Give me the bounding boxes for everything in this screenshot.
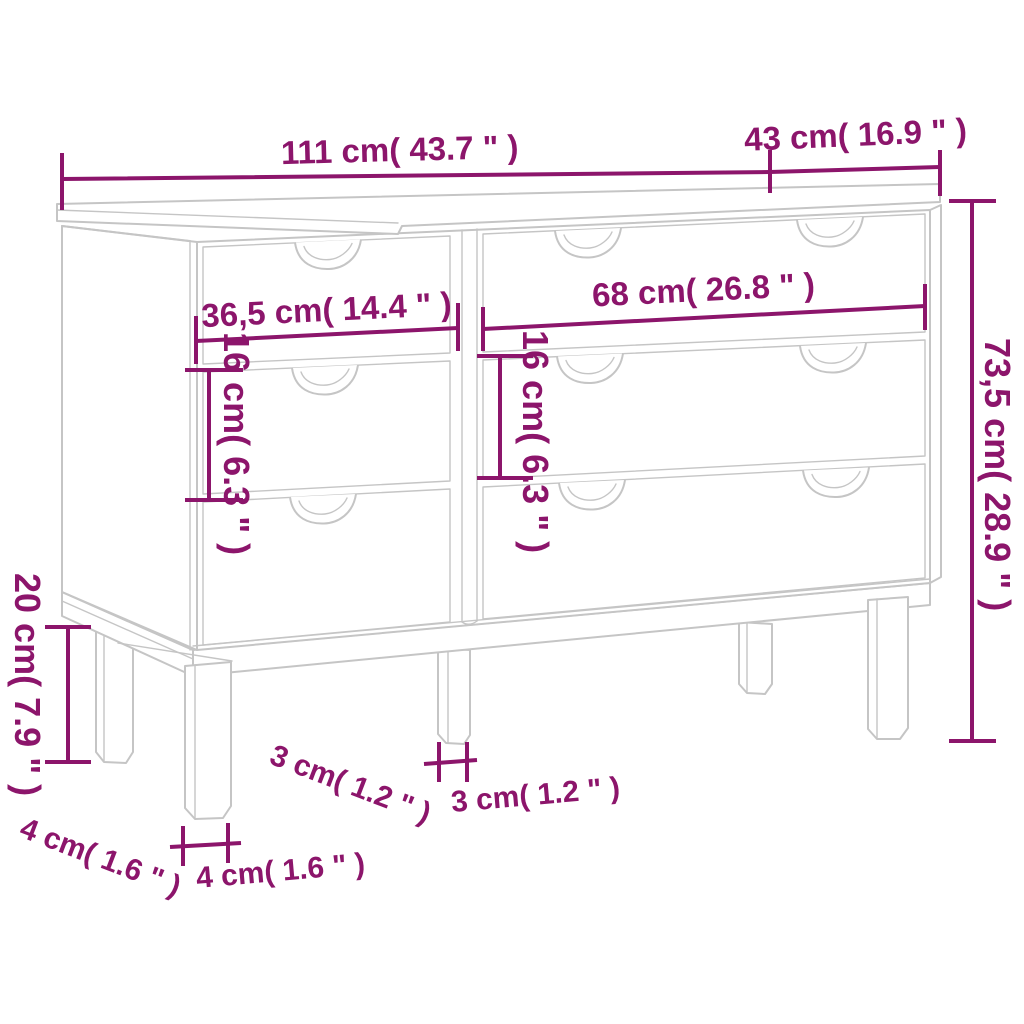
dim-leg-width: 4 cm( 1.6 " ) 4 cm( 1.6 " ): [15, 812, 366, 903]
dim-label-leg-depth-horizontal: 3 cm( 1.2 " ): [450, 771, 622, 819]
left-side-panel: [62, 226, 197, 650]
dim-label-leg-height: 20 cm( 7.9 " ): [7, 573, 48, 796]
dim-label-leg-width-diagonal: 4 cm( 1.6 " ): [15, 812, 185, 903]
back-middle-leg: [438, 648, 470, 744]
dim-label-right-drawer-height: 16 cm( 6.3 " ): [515, 330, 556, 553]
dim-label-leg-width-horizontal: 4 cm( 1.6 " ): [195, 847, 367, 895]
back-right-leg: [739, 622, 772, 694]
front-face: [193, 205, 941, 650]
dim-leg-depth: 3 cm( 1.2 " ) 3 cm( 1.2 " ): [265, 739, 621, 830]
dim-label-total-height: 73,5 cm( 28.9 " ): [977, 338, 1018, 611]
dim-label-left-drawer-height: 16 cm( 6.3 " ): [216, 332, 257, 555]
dim-label-leg-depth-diagonal: 3 cm( 1.2 " ): [265, 739, 435, 830]
dim-total-height: 73,5 cm( 28.9 " ): [949, 201, 1018, 741]
front-left-leg: [185, 662, 231, 819]
front-right-leg: [868, 597, 908, 739]
dim-label-top-depth: 43 cm( 16.9 " ): [743, 111, 967, 158]
dim-label-top-width: 111 cm( 43.7 " ): [280, 128, 519, 171]
dimension-diagram-page: 111 cm( 43.7 " ) 43 cm( 16.9 " ) 36,5 cm…: [0, 0, 1024, 1024]
dresser-dimension-diagram: 111 cm( 43.7 " ) 43 cm( 16.9 " ) 36,5 cm…: [0, 0, 1024, 1024]
back-left-leg: [96, 628, 133, 763]
